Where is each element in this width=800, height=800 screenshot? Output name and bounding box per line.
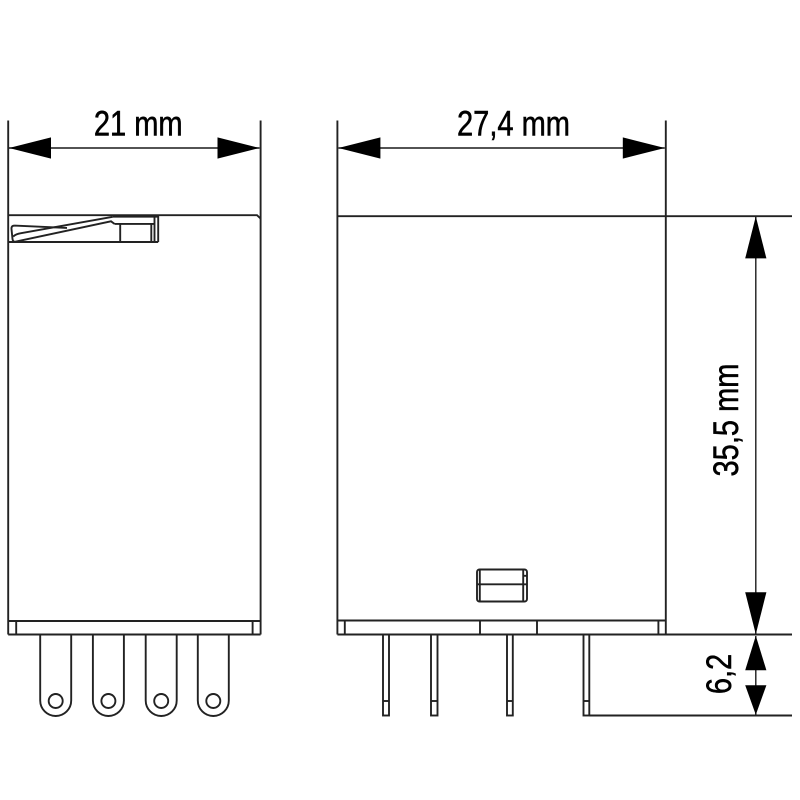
svg-text:27,4 mm: 27,4 mm bbox=[457, 104, 570, 143]
svg-text:35,5 mm: 35,5 mm bbox=[706, 364, 745, 477]
svg-text:6,2: 6,2 bbox=[699, 654, 738, 694]
svg-text:21 mm: 21 mm bbox=[94, 104, 183, 143]
